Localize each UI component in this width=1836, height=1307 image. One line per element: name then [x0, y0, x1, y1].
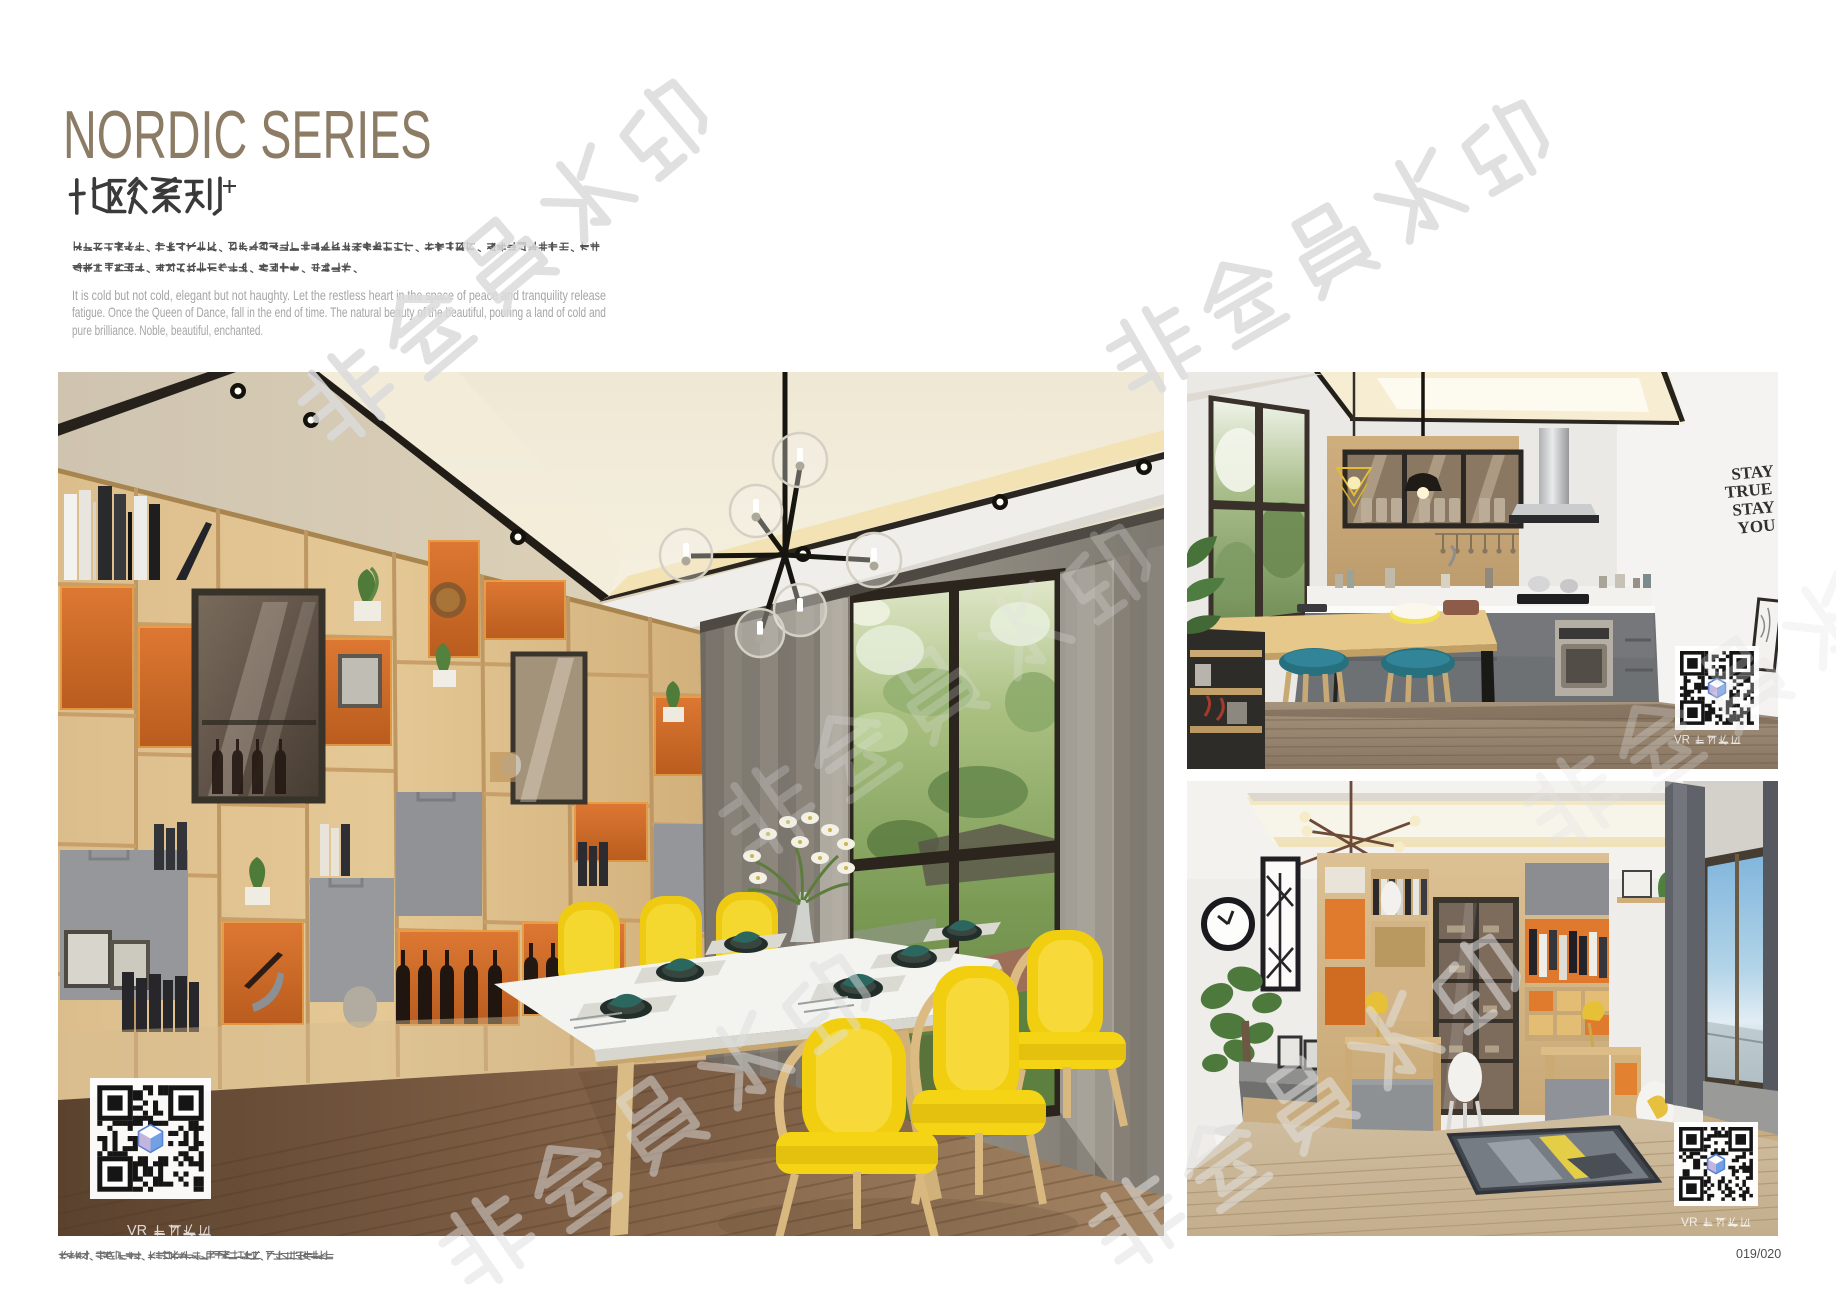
svg-text:VR: VR — [1681, 1215, 1698, 1229]
svg-text:VR: VR — [127, 1223, 147, 1236]
svg-text:YOU: YOU — [1737, 515, 1776, 537]
